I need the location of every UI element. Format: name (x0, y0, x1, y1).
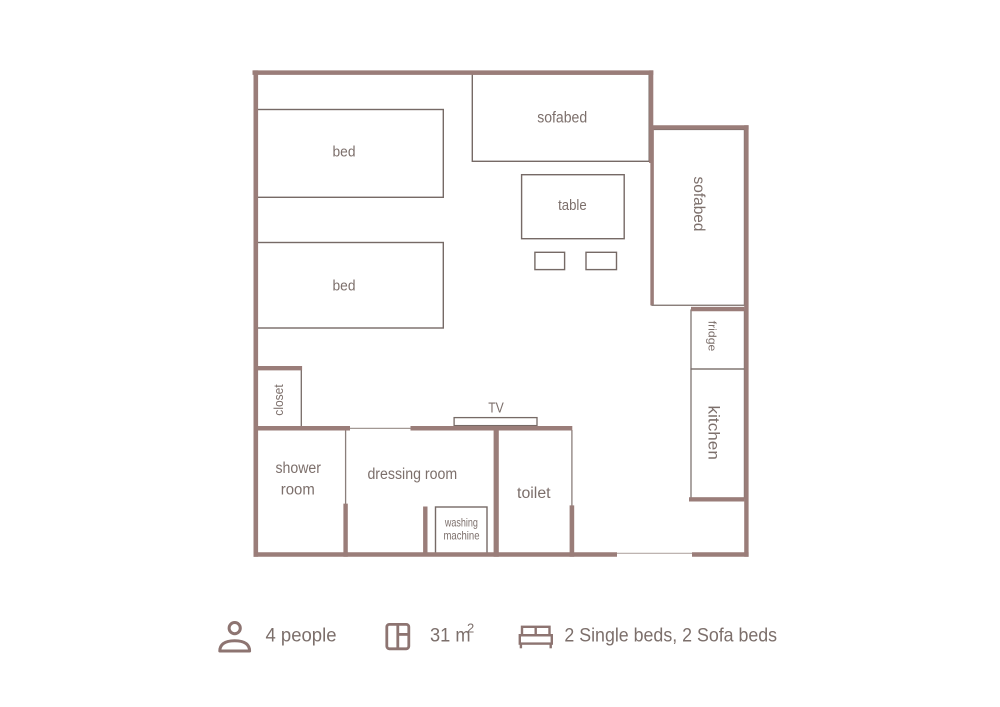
svg-text:table: table (558, 198, 587, 214)
svg-text:toilet: toilet (517, 485, 551, 502)
svg-text:dressing room: dressing room (367, 466, 457, 483)
svg-text:room: room (281, 482, 315, 499)
svg-text:sofabed: sofabed (537, 110, 587, 127)
svg-text:closet: closet (272, 384, 286, 416)
svg-text:washing: washing (444, 515, 478, 529)
svg-text:fridge: fridge (705, 321, 717, 352)
svg-text:TV: TV (488, 400, 504, 416)
svg-text:shower: shower (275, 460, 321, 477)
svg-text:kitchen: kitchen (705, 406, 722, 460)
svg-text:2 Single beds, 2 Sofa beds: 2 Single beds, 2 Sofa beds (564, 624, 777, 646)
svg-text:2: 2 (467, 621, 474, 636)
svg-text:machine: machine (444, 529, 480, 543)
svg-text:bed: bed (333, 278, 356, 295)
svg-text:sofabed: sofabed (690, 177, 707, 232)
svg-text:31 m: 31 m (430, 624, 471, 646)
svg-text:4 people: 4 people (266, 624, 337, 646)
svg-text:bed: bed (333, 144, 356, 161)
